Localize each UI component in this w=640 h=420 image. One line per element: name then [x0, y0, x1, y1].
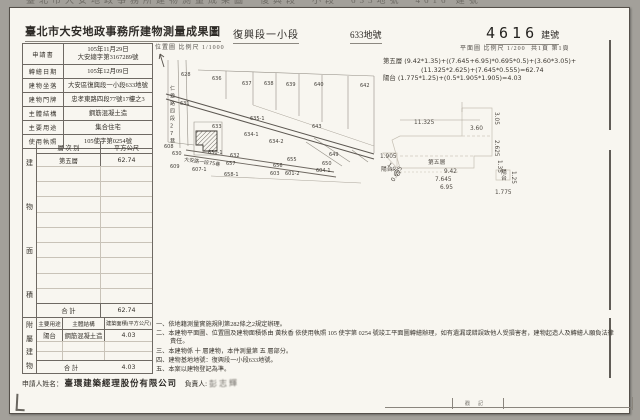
svg-text:陽: 陽 — [501, 168, 507, 176]
annex-structure-header: 主體結構 — [63, 318, 105, 329]
section-name: 復興段一小段 — [233, 26, 299, 44]
building-number-unit: 建號 — [541, 30, 559, 40]
svg-text:1.775: 1.775 — [495, 190, 512, 196]
svg-text:640: 640 — [314, 82, 324, 88]
doc-title: 臺北市大安地政事務所建物測量成果圖 — [25, 23, 221, 42]
svg-text:601-2: 601-2 — [285, 171, 300, 177]
svg-text:3.60: 3.60 — [470, 126, 483, 132]
svg-text:630-1: 630-1 — [208, 150, 223, 156]
info-row-value: 105年11月29日大安總字第3167289號 — [64, 44, 152, 64]
info-table: 申請書105年11月29日大安總字第3167289號轉繪日期105年12月09日… — [22, 43, 153, 149]
applicant-line: 申請人姓名： 臺環建築經理股份有限公司 負責人: 彭志輝 — [22, 377, 239, 389]
annex-total-label: 合 計 — [37, 361, 105, 373]
svg-text:649: 649 — [329, 152, 339, 158]
floor-total-value: 62.74 — [101, 304, 152, 317]
svg-text:634-1: 634-1 — [244, 132, 259, 138]
svg-text:636: 636 — [212, 76, 222, 82]
svg-text:643: 643 — [312, 124, 322, 130]
annex-structure-cell: 鋼筋混凝土造 — [63, 330, 105, 341]
fold-line — [609, 318, 611, 378]
svg-text:巷: 巷 — [170, 139, 175, 145]
floor-area-table: 建物面積 層 次 別 平方公尺 第五層 62.74 合 計 62.74 — [22, 141, 153, 318]
floor-plan-labels: 11.3253.603.052.6251.35第五層9.427.6456.95陽… — [380, 112, 516, 196]
plan-scale-label: 平面圖 比例尺 1/200 — [460, 43, 526, 52]
annex-side-label: 附屬建物 — [23, 318, 37, 373]
svg-text:604-1: 604-1 — [316, 168, 331, 174]
floor-area-side-label: 建物面積 — [23, 141, 37, 317]
info-row: 建物坐落大安區復興段一小段633地號 — [23, 78, 152, 92]
svg-text:台: 台 — [501, 174, 507, 182]
info-row-label: 主體結構 — [23, 107, 64, 120]
building-number: 4616建號 — [486, 24, 559, 45]
svg-text:638: 638 — [264, 81, 274, 87]
info-row-value: 105年12月09日 — [64, 65, 152, 78]
note-item: 五、本案以建物登記為準。 — [156, 366, 616, 374]
note-item: 一、依地籍測量實施規則第282條之2規定辦理。 — [156, 321, 616, 329]
info-row: 申請書105年11月29日大安總字第3167289號 — [23, 44, 152, 64]
svg-text:655: 655 — [287, 157, 297, 163]
svg-text:633: 633 — [212, 124, 222, 130]
note-item: 三、本建物係 十 層建物，本件測量第 五 層部分。 — [156, 348, 616, 356]
main-road — [166, 94, 374, 159]
svg-text:路: 路 — [170, 100, 175, 107]
annex-table: 附屬建物 主要用途 主體結構 建築面積(平方公尺) 陽台 鋼筋混凝土造 4.03… — [22, 318, 153, 374]
info-row: 轉繪日期105年12月09日 — [23, 64, 152, 78]
stamp-box: 戳記 — [452, 398, 504, 409]
formula-balcony: 陽台 (1.775*1.25)+(0.5*1.905*1.905)=4.03 — [383, 74, 576, 83]
svg-text:632: 632 — [230, 153, 240, 159]
representative-label: 負責人: — [185, 381, 207, 388]
svg-text:658-1: 658-1 — [224, 172, 239, 178]
svg-text:637: 637 — [242, 81, 252, 87]
svg-text:2: 2 — [170, 124, 173, 130]
corner-mark — [16, 394, 26, 411]
area-col-header: 平方公尺 — [101, 141, 152, 153]
info-row-value: 集合住宅 — [64, 121, 152, 134]
svg-text:1.25: 1.25 — [510, 171, 516, 184]
svg-text:第五層: 第五層 — [428, 158, 446, 166]
info-row-value: 忠孝東路四段77號17樓之3 — [64, 93, 152, 106]
north-arrow-icon — [159, 54, 164, 67]
svg-text:6.95: 6.95 — [440, 185, 453, 191]
location-map: 628636637638639640642631633635-1634-1634… — [156, 50, 376, 190]
annex-blank-rows — [37, 341, 152, 360]
floor-name-cell: 第五層 — [37, 154, 101, 166]
svg-text:608: 608 — [164, 144, 174, 150]
svg-text:639: 639 — [286, 82, 296, 88]
svg-text:603: 603 — [270, 171, 280, 177]
svg-text:628: 628 — [181, 72, 191, 78]
floor-total-label: 合 計 — [37, 304, 101, 317]
svg-text:642: 642 — [360, 83, 370, 89]
formula-floor: 第五層 (9.42*1.35)+((7.645+6.95)*0.695*0.5)… — [383, 57, 576, 66]
svg-text:656: 656 — [273, 163, 283, 169]
floor-col-header: 層 次 別 — [37, 141, 101, 153]
info-row-label: 主要用途 — [23, 121, 64, 134]
svg-text:3.05: 3.05 — [493, 112, 499, 125]
subject-parcel-hatch — [196, 131, 217, 151]
svg-text:657: 657 — [226, 161, 236, 167]
svg-text:650: 650 — [322, 161, 332, 167]
svg-text:11.325: 11.325 — [414, 120, 435, 126]
svg-text:630: 630 — [172, 151, 182, 157]
info-row-label: 轉繪日期 — [23, 65, 64, 78]
svg-text:631: 631 — [180, 101, 190, 107]
info-row: 主要用途集合住宅 — [23, 120, 152, 134]
svg-text:7.645: 7.645 — [435, 177, 452, 183]
top-clipped-text: 臺北市大安地政事務所建物測量成果圖 復興段一小段 633地號 4616 建號 — [26, 0, 626, 6]
floor-blank-rows — [37, 166, 152, 303]
formula-floor-cont: (11.325*2.625)+(7.645*0.555)=62.74 — [383, 66, 576, 75]
info-row: 主體結構鋼筋混凝土造 — [23, 106, 152, 120]
info-row-label: 建物坐落 — [23, 79, 64, 92]
screenshot-root: { "top_strip": { "text": "臺北市大安地政事務所建物測量… — [0, 0, 640, 420]
info-row-label: 申請書 — [23, 44, 64, 64]
annex-total-value: 4.03 — [105, 361, 152, 373]
svg-text:635-1: 635-1 — [250, 116, 265, 122]
formula-block: 第五層 (9.42*1.35)+((7.645+6.95)*0.695*0.5)… — [383, 57, 576, 83]
annex-use-cell: 陽台 — [37, 330, 63, 341]
floor-plan: 11.3253.603.052.6251.35第五層9.427.6456.95陽… — [378, 98, 618, 258]
svg-text:段: 段 — [170, 115, 175, 122]
representative-signature: 彭志輝 — [208, 377, 238, 389]
svg-text:9.42: 9.42 — [444, 169, 457, 175]
annex-area-cell: 4.03 — [105, 330, 152, 341]
svg-text:四: 四 — [170, 109, 175, 115]
page-count-label: 共1頁 第1頁 — [531, 43, 570, 52]
notes-list: 一、依地籍測量實施規則第282條之2規定辦理。二、本建物平面圖、位置圖及建物面積… — [156, 321, 616, 375]
floor-area-cell: 62.74 — [101, 154, 152, 166]
svg-text:634-2: 634-2 — [269, 139, 284, 145]
svg-text:609: 609 — [170, 164, 180, 170]
fold-line — [609, 40, 611, 130]
stamp-line-tick — [632, 397, 633, 410]
annex-use-header: 主要用途 — [37, 318, 63, 329]
svg-text:仁: 仁 — [170, 85, 175, 92]
annex-area-header: 建築面積(平方公尺) — [105, 318, 152, 329]
info-row-value: 大安區復興段一小段633地號 — [64, 79, 152, 92]
svg-text:2.625: 2.625 — [493, 140, 499, 157]
svg-text:607-1: 607-1 — [192, 167, 207, 173]
info-row-value: 鋼筋混凝土造 — [64, 107, 152, 120]
fold-line — [609, 150, 611, 310]
dimension-lines — [400, 102, 480, 120]
info-row: 建物門牌忠孝東路四段77號17樓之3 — [23, 92, 152, 106]
applicant-name: 臺環建築經理股份有限公司 — [64, 379, 177, 388]
applicant-label: 申請人姓名： — [22, 381, 63, 388]
note-item: 四、建物基地地號：復興段一小段633地號。 — [156, 357, 616, 365]
stamp-line — [385, 407, 633, 408]
svg-text:7: 7 — [170, 131, 173, 137]
info-row-label: 建物門牌 — [23, 93, 64, 106]
parcel-number: 633地號 — [350, 28, 382, 44]
note-item: 二、本建物平面圖、位置圖及建物面積係由 黃秋香 依使用執照 105 使字第 02… — [156, 330, 616, 346]
building-number-value: 4616 — [486, 24, 538, 42]
svg-text:1.905: 1.905 — [380, 154, 397, 160]
svg-text:愛: 愛 — [170, 93, 175, 100]
